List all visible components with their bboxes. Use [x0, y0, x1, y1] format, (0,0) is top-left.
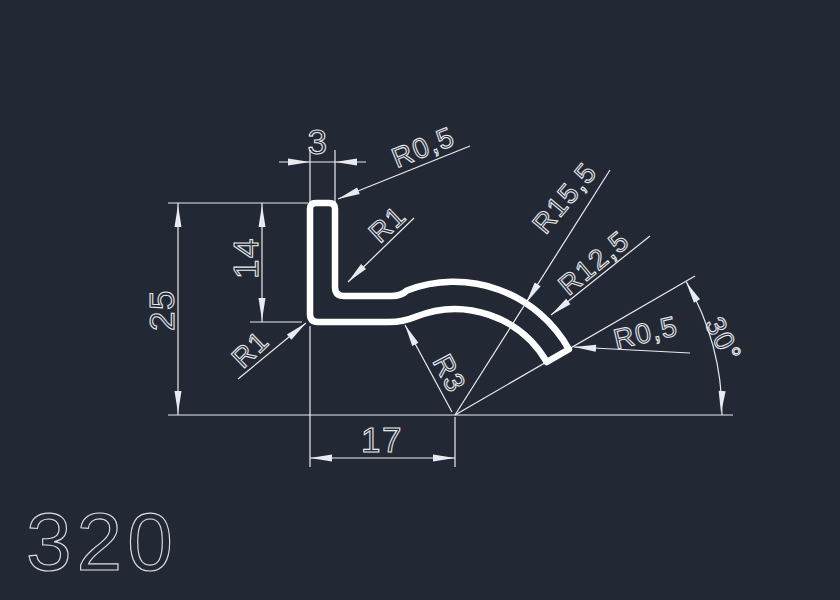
cad-drawing-canvas: 3 25 14 17 30° R0,5: [0, 0, 840, 600]
dimension-text-total-height: 25: [142, 289, 181, 331]
dimension-text-leg-height: 14: [226, 237, 265, 279]
dimension-text-bottom-width: 17: [361, 420, 403, 459]
part-number: 320: [26, 496, 178, 587]
dimension-text-top-width: 3: [308, 122, 329, 161]
cad-drawing-svg: 3 25 14 17 30° R0,5: [0, 0, 840, 600]
